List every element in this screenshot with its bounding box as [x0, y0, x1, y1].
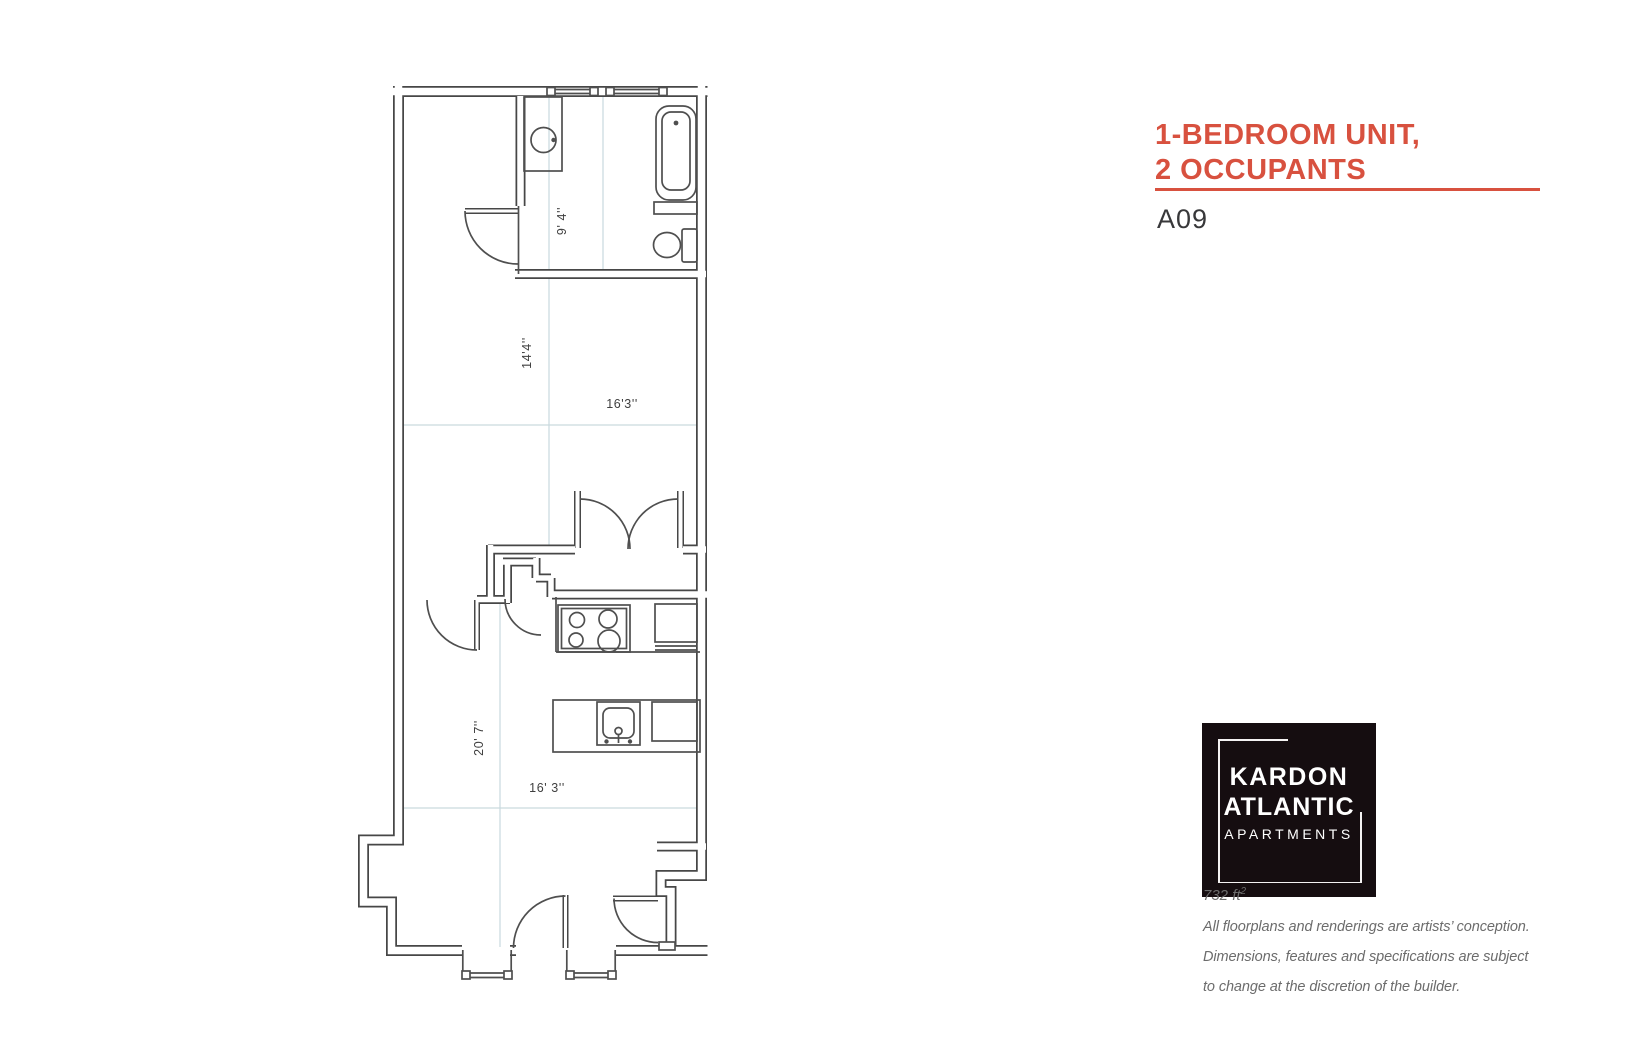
- logo-name-line2: ATLANTIC: [1202, 793, 1376, 822]
- kitchen-fixtures: [553, 597, 700, 752]
- floorplan-sheet: 1-BEDROOM UNIT, 2 OCCUPANTS A09 KARDON A…: [0, 0, 1637, 1059]
- dim-bathroom: 9' 4'': [555, 207, 569, 235]
- title-line-2: 2 OCCUPANTS: [1155, 153, 1575, 188]
- logo-frame-top: [1218, 739, 1288, 741]
- toilet-bowl: [654, 233, 681, 258]
- disclaimer-line-3: to change at the discretion of the build…: [1203, 972, 1530, 1002]
- logo-frame-right: [1360, 812, 1362, 883]
- disclaimer: All floorplans and renderings are artist…: [1203, 912, 1530, 1002]
- logo-name-line3: APARTMENTS: [1202, 826, 1376, 842]
- sink-counter: [524, 97, 562, 171]
- toilet-tank: [682, 229, 697, 262]
- title-underline: [1155, 188, 1540, 191]
- patio-door-arc: [514, 896, 566, 948]
- fridge: [655, 604, 697, 642]
- entry-door-arc: [614, 899, 658, 943]
- disclaimer-line-1: All floorplans and renderings are artist…: [1203, 912, 1530, 942]
- page-title: 1-BEDROOM UNIT, 2 OCCUPANTS: [1155, 118, 1575, 188]
- island-faucet: [615, 728, 622, 735]
- dishwasher: [652, 702, 697, 741]
- dim-living-depth: 20' 7'': [472, 720, 486, 756]
- dimension-labels: 9' 4'' 14'4'' 16'3'' 20' 7'' 16' 3'': [472, 207, 638, 795]
- faucet-handle-left: [604, 739, 608, 743]
- wall-cores: [364, 86, 708, 951]
- bathtub-drain: [674, 121, 679, 126]
- double-door-left-arc: [580, 499, 630, 549]
- burner-bl: [569, 633, 583, 647]
- door-arcs: [427, 206, 678, 948]
- unit-code: A09: [1157, 204, 1208, 235]
- burner-tr: [599, 610, 617, 628]
- area-value: 732 ft: [1203, 887, 1241, 904]
- double-door-right-arc: [628, 499, 678, 549]
- logo-name-line1: KARDON: [1202, 763, 1376, 792]
- bathroom-door-arc: [465, 211, 518, 264]
- faucet-handle-right: [628, 739, 632, 743]
- dim-living-width: 16' 3'': [529, 781, 565, 795]
- title-line-1: 1-BEDROOM UNIT,: [1155, 118, 1575, 153]
- sink-faucet-dot: [551, 138, 555, 142]
- entry-threshold-notch: [659, 942, 675, 950]
- area-superscript: 2: [1241, 886, 1247, 897]
- bedroom-door-arc: [427, 600, 477, 650]
- bath-shelf: [654, 202, 697, 214]
- dim-bedroom-depth: 14'4'': [520, 337, 534, 369]
- dimension-guide-lines: [393, 97, 700, 947]
- unit-area: 732 ft2: [1203, 886, 1246, 904]
- island-sink-basin: [603, 708, 634, 738]
- bathroom-fixtures: [524, 97, 697, 262]
- walls: [364, 86, 708, 951]
- disclaimer-line-2: Dimensions, features and specifications …: [1203, 942, 1530, 972]
- burner-tl: [570, 613, 585, 628]
- dim-bedroom-width: 16'3'': [606, 397, 638, 411]
- kardon-atlantic-logo: KARDON ATLANTIC APARTMENTS: [1202, 723, 1376, 897]
- logo-frame-bottom: [1218, 882, 1362, 884]
- bay-window-right: [566, 950, 616, 979]
- closet-door-arc: [505, 599, 541, 635]
- floorplan-drawing: 9' 4'' 14'4'' 16'3'' 20' 7'' 16' 3'': [340, 75, 720, 995]
- bay-window-left: [462, 950, 512, 979]
